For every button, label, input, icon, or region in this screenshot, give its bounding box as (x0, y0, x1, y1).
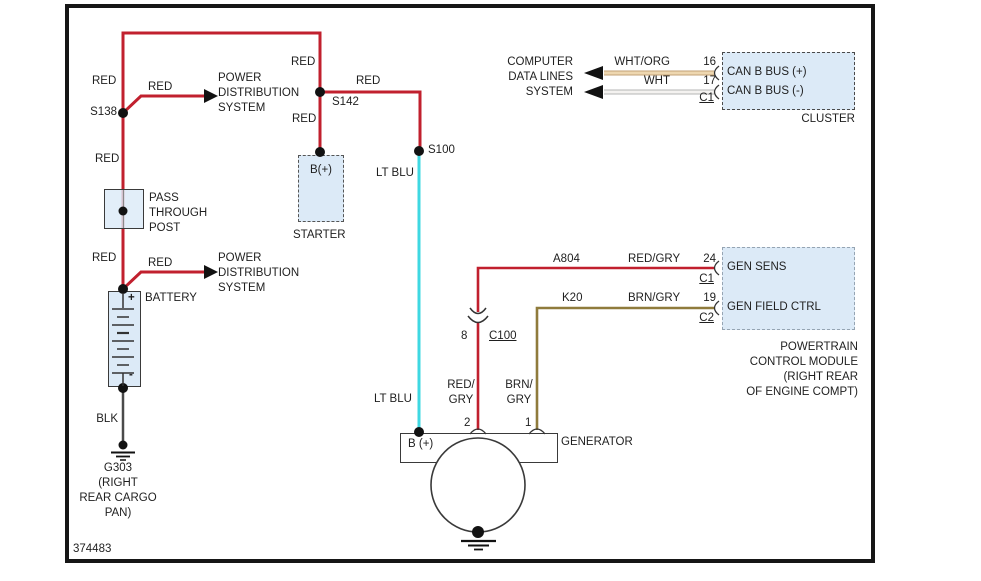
pin-16-label: 16 (690, 56, 716, 69)
cdl-line1: COMPUTER (477, 55, 573, 70)
wire-label-red-2: RED (148, 81, 172, 94)
g303-line1: G303 (48, 461, 188, 476)
wire-label-red-8: RED (292, 113, 316, 126)
pin-19-label: 19 (690, 292, 716, 305)
splice-s142-label: S142 (332, 96, 359, 109)
wire-label-red-5: RED (148, 257, 172, 270)
wire-label-red-6: RED (291, 56, 315, 69)
diagram-number: 374483 (73, 543, 111, 556)
battery-box (108, 291, 141, 387)
cluster-pin-can-plus: CAN B BUS (+) (727, 66, 807, 79)
wire-label-red-7: RED (356, 75, 380, 88)
pcm-pin-gen-field-ctrl: GEN FIELD CTRL (727, 301, 821, 314)
ptp-line2: THROUGH (149, 206, 207, 221)
pcm-line4: OF ENGINE COMPT) (660, 385, 858, 400)
red-gry-line1: RED/ (438, 378, 484, 393)
pcm-pin-gen-sens: GEN SENS (727, 261, 786, 274)
cdl-line3: SYSTEM (477, 85, 573, 100)
computer-data-lines-label: COMPUTER DATA LINES SYSTEM (477, 55, 573, 100)
pds-upper-line1: POWER (218, 71, 299, 86)
pds-lower-line1: POWER (218, 251, 299, 266)
power-distribution-lower: POWER DISTRIBUTION SYSTEM (218, 251, 299, 296)
pcm-box (722, 247, 855, 330)
g303-label: G303 (RIGHT REAR CARGO PAN) (48, 461, 188, 521)
splice-s138-label: S138 (80, 106, 117, 119)
battery-minus-sign: - (129, 369, 133, 382)
connector-c100-label: C100 (489, 330, 517, 343)
pcm-line3: (RIGHT REAR (660, 370, 858, 385)
pcm-connector-c2-label: C2 (688, 312, 714, 325)
generator-label: GENERATOR (561, 436, 633, 449)
pass-through-post-divider (123, 190, 124, 228)
g303-line4: PAN) (48, 506, 188, 521)
pin-17-label: 17 (690, 75, 716, 88)
pds-lower-line3: SYSTEM (218, 281, 299, 296)
cdl-line2: DATA LINES (477, 70, 573, 85)
ptp-line3: POST (149, 221, 207, 236)
wire-label-lt-blu-2: LT BLU (374, 393, 412, 406)
pin-8-label: 8 (461, 330, 467, 343)
wire-label-brn-gry-2line: BRN/ GRY (496, 378, 542, 408)
g303-line3: REAR CARGO (48, 491, 188, 506)
circuit-k20-label: K20 (562, 292, 582, 305)
battery-plus-sign: + (128, 292, 135, 305)
pds-upper-line3: SYSTEM (218, 101, 299, 116)
pcm-line2: CONTROL MODULE (660, 355, 858, 370)
wire-label-red-3: RED (95, 153, 119, 166)
wire-label-blk: BLK (90, 413, 118, 426)
cluster-label: CLUSTER (760, 113, 855, 126)
brn-gry-line2: GRY (496, 393, 542, 408)
red-gry-line2: GRY (438, 393, 484, 408)
wire-label-red-gry: RED/GRY (628, 253, 680, 266)
starter-label: STARTER (293, 229, 346, 242)
cluster-pin-can-minus: CAN B BUS (-) (727, 85, 804, 98)
wire-label-red-1: RED (92, 75, 116, 88)
wire-label-brn-gry: BRN/GRY (628, 292, 680, 305)
pds-lower-line2: DISTRIBUTION (218, 266, 299, 281)
power-distribution-upper: POWER DISTRIBUTION SYSTEM (218, 71, 299, 116)
starter-terminal-label: B(+) (299, 164, 343, 177)
pcm-line1: POWERTRAIN (660, 340, 858, 355)
wiring-diagram: RED S138 RED POWER DISTRIBUTION SYSTEM R… (0, 0, 981, 581)
circuit-a804-label: A804 (553, 253, 580, 266)
pass-through-post-box (104, 189, 144, 229)
wire-label-red-4: RED (92, 252, 116, 265)
wire-label-lt-blu-1: LT BLU (376, 167, 414, 180)
pin-24-label: 24 (690, 253, 716, 266)
pcm-connector-c1-label: C1 (688, 273, 714, 286)
splice-s100-label: S100 (428, 144, 455, 157)
pin-1-label: 1 (525, 417, 531, 430)
wire-label-wht: WHT (600, 75, 670, 88)
brn-gry-line1: BRN/ (496, 378, 542, 393)
g303-line2: (RIGHT (48, 476, 188, 491)
pcm-label: POWERTRAIN CONTROL MODULE (RIGHT REAR OF… (660, 340, 858, 400)
generator-terminal-label: B (+) (408, 438, 433, 451)
cluster-box (722, 52, 855, 110)
wire-label-red-gry-2line: RED/ GRY (438, 378, 484, 408)
pass-through-post-label: PASS THROUGH POST (149, 191, 207, 236)
pin-2-label: 2 (464, 417, 470, 430)
cluster-connector-c1-label: C1 (688, 92, 714, 105)
pds-upper-line2: DISTRIBUTION (218, 86, 299, 101)
battery-label: BATTERY (145, 292, 197, 305)
ptp-line1: PASS (149, 191, 207, 206)
wire-label-wht-org: WHT/ORG (600, 56, 670, 69)
